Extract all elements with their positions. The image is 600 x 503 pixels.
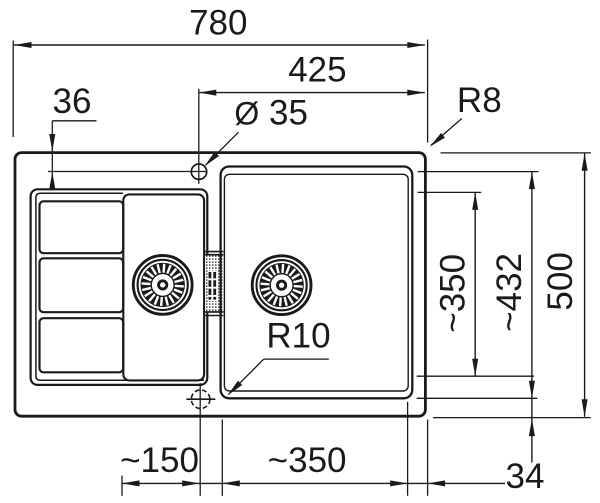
svg-text:~350: ~350 (433, 254, 472, 333)
svg-text:780: 780 (189, 4, 247, 43)
svg-text:Ø 35: Ø 35 (234, 94, 308, 133)
svg-text:36: 36 (53, 82, 92, 121)
svg-text:~350: ~350 (268, 441, 347, 480)
svg-text:R8: R8 (457, 81, 502, 120)
svg-text:R10: R10 (266, 317, 330, 356)
svg-text:425: 425 (288, 51, 346, 90)
svg-text:~150: ~150 (120, 441, 199, 480)
svg-text:~432: ~432 (490, 253, 529, 332)
svg-text:500: 500 (541, 252, 580, 310)
svg-text:34: 34 (506, 457, 545, 496)
